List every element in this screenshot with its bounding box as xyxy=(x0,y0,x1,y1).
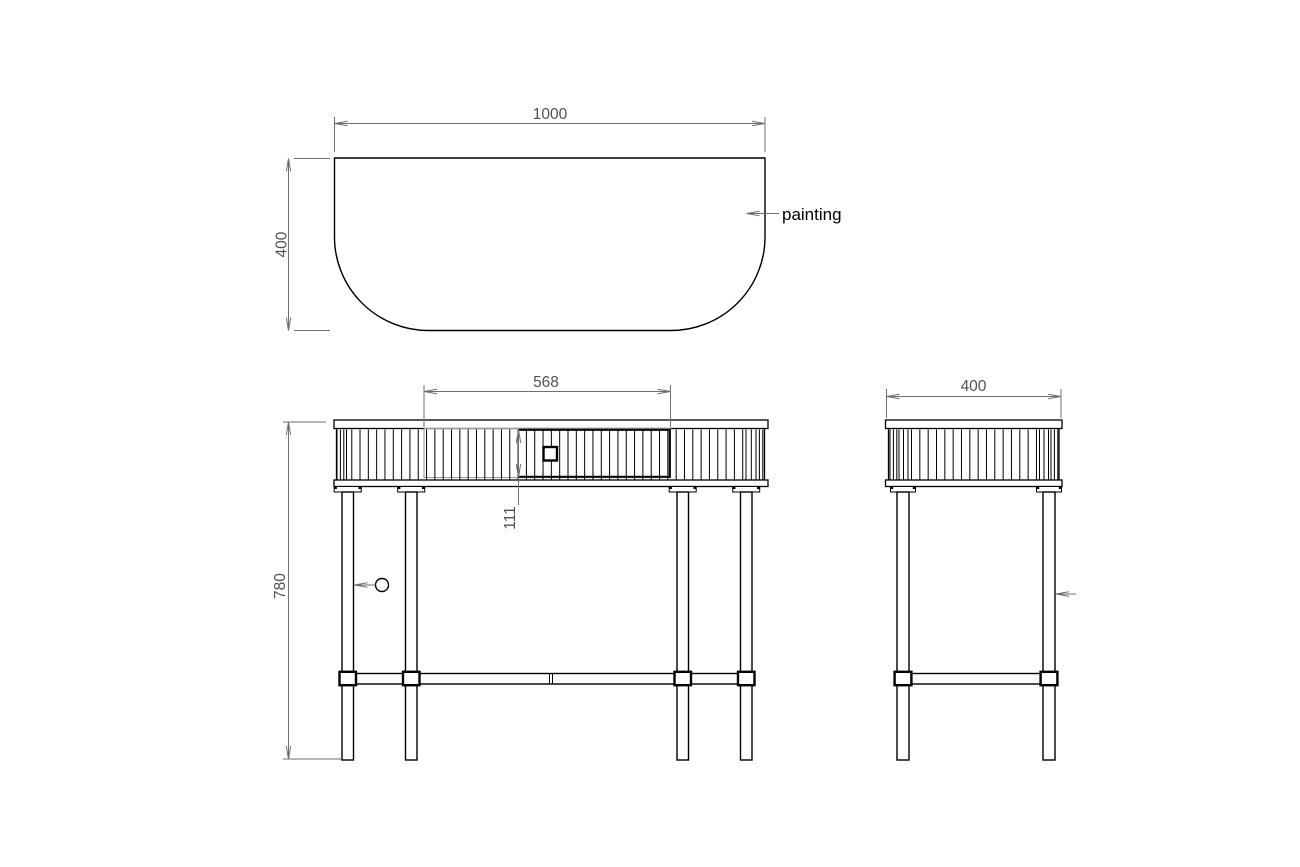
stretcher-joint-block xyxy=(738,672,755,685)
leg-cap xyxy=(398,487,425,493)
drawer-front-outline xyxy=(519,430,670,477)
cap-tick xyxy=(1059,486,1062,489)
table-leg xyxy=(406,492,418,760)
dimension-plan-depth xyxy=(286,159,330,331)
side-depth-dim-text: 400 xyxy=(961,378,987,395)
cap-tick xyxy=(757,486,760,489)
overall-height-dim-text: 780 xyxy=(272,573,289,599)
cap-tick xyxy=(359,486,362,489)
dimension-drawer-height xyxy=(516,430,520,506)
drawer-height-dim-text: 111 xyxy=(502,506,519,530)
leg-cap xyxy=(334,487,361,493)
side-legs xyxy=(897,492,1055,760)
table-leg xyxy=(342,492,354,760)
cap-tick xyxy=(669,486,672,489)
cap-tick xyxy=(694,486,697,489)
cap-tick xyxy=(890,486,893,489)
table-leg xyxy=(897,492,909,760)
side-apron-fluting xyxy=(890,430,1058,480)
stretcher-joint-block xyxy=(1041,672,1058,685)
table-leg xyxy=(741,492,753,760)
side-leg-callout xyxy=(1056,592,1076,596)
stretcher-joint-block xyxy=(403,672,420,685)
cap-tick xyxy=(422,486,425,489)
front-legs xyxy=(342,492,752,760)
drawer-knob xyxy=(544,447,558,461)
table-leg xyxy=(1043,492,1055,760)
cad-drawing: 1000 400 painting xyxy=(0,0,1300,867)
cap-tick xyxy=(1036,486,1039,489)
cap-tick xyxy=(913,486,916,489)
callout-circle xyxy=(376,579,389,592)
leg-cap xyxy=(669,487,696,493)
plan-view: 1000 400 painting xyxy=(274,106,842,331)
tabletop-outline xyxy=(335,158,766,331)
leg-cap xyxy=(1037,487,1062,493)
stretcher-joint-block xyxy=(675,672,692,685)
side-bottom-rail xyxy=(886,480,1063,487)
leg-cap xyxy=(733,487,760,493)
drawing-sheet: 1000 400 painting xyxy=(0,0,1300,867)
stretcher-joint-block xyxy=(895,672,912,685)
side-view: 400 xyxy=(886,378,1077,760)
detail-callout xyxy=(355,579,389,592)
cap-tick xyxy=(732,486,735,489)
cap-tick xyxy=(397,486,400,489)
table-leg xyxy=(677,492,689,760)
side-tabletop-edge xyxy=(886,420,1063,429)
drawer-width-dim-text: 568 xyxy=(533,374,559,391)
dimension-overall-height xyxy=(283,422,341,759)
front-bottom-rail xyxy=(334,480,768,487)
plan-width-dim-text: 1000 xyxy=(533,106,568,123)
side-stretcher xyxy=(903,674,1049,685)
stretcher-joint-block xyxy=(340,672,357,685)
leg-cap xyxy=(891,487,916,493)
painting-callout: painting xyxy=(747,205,842,224)
front-view: 568 111 780 xyxy=(272,374,768,760)
painting-label: painting xyxy=(782,205,842,224)
cap-tick xyxy=(334,486,337,489)
plan-depth-dim-text: 400 xyxy=(274,231,291,257)
front-tabletop-edge xyxy=(334,420,768,429)
